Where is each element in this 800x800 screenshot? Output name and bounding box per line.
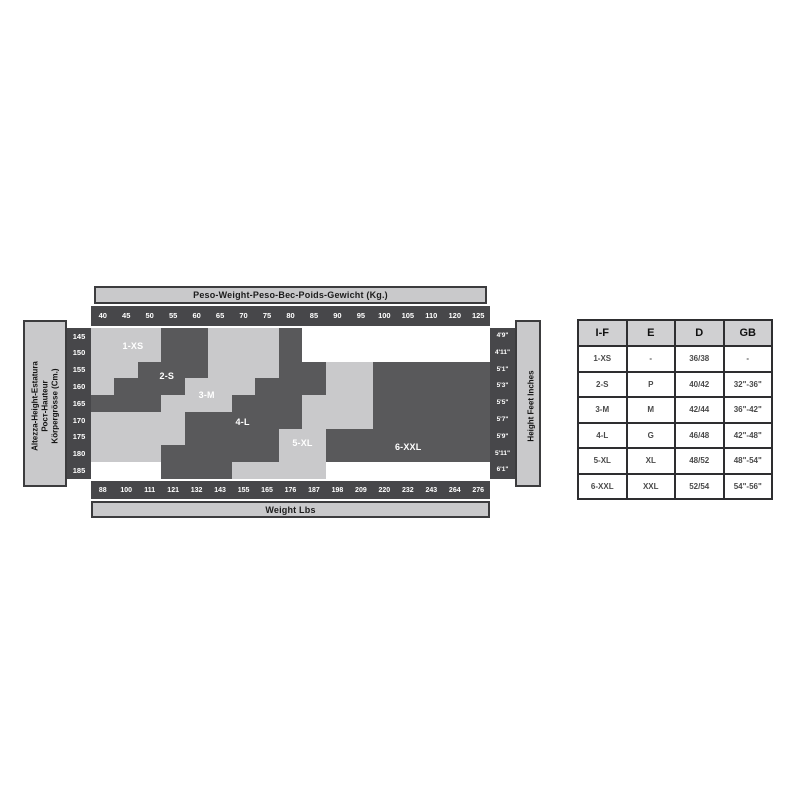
lbs-footer-label: Weight Lbs <box>265 505 315 515</box>
band-label-4-l: 4-L <box>236 417 250 427</box>
size-table-row: 4-LG46/4842"-48" <box>578 423 772 449</box>
size-cell-4-l <box>302 362 325 379</box>
size-cell-4-l <box>161 462 184 479</box>
feet-tick: 5'5" <box>490 395 515 412</box>
size-cell-1-xs <box>91 345 114 362</box>
size-cell-6-xxl <box>326 445 349 462</box>
kg-header-bar: Peso-Weight-Peso-Вес-Poids-Gewicht (Kg.) <box>94 286 487 304</box>
size-cell-4-l <box>232 395 255 412</box>
size-cell-2-s <box>161 345 184 362</box>
size-cell-2-s <box>138 395 161 412</box>
size-cell-4-l <box>232 445 255 462</box>
empty-cell <box>302 345 325 362</box>
size-table-header-row: I-FEDGB <box>578 320 772 346</box>
size-cell-6-xxl <box>396 395 419 412</box>
size-table-cell: 2-S <box>578 372 627 398</box>
feet-tick: 4'9" <box>490 328 515 345</box>
lbs-axis-strip: 8810011112113214315516517618719820922023… <box>91 481 490 499</box>
size-cell-5-xl <box>279 462 302 479</box>
empty-cell <box>114 462 137 479</box>
size-table-cell: 40/42 <box>675 372 724 398</box>
size-cell-5-xl <box>326 378 349 395</box>
size-cell-6-xxl <box>373 362 396 379</box>
cm-tick: 155 <box>67 362 91 379</box>
cm-tick: 170 <box>67 412 91 429</box>
size-table-cell: 54"-56" <box>724 474 773 500</box>
cm-tick: 185 <box>67 462 91 479</box>
empty-cell <box>396 328 419 345</box>
kg-tick: 90 <box>326 306 349 326</box>
empty-cell <box>420 328 443 345</box>
size-table-cell: 46/48 <box>675 423 724 449</box>
size-cell-6-xxl <box>420 445 443 462</box>
lbs-tick: 132 <box>185 481 208 499</box>
size-cell-3-m <box>161 429 184 446</box>
size-cell-5-xl <box>326 412 349 429</box>
size-cell-3-m <box>114 445 137 462</box>
cm-tick: 160 <box>67 378 91 395</box>
empty-cell <box>420 462 443 479</box>
empty-cell <box>396 345 419 362</box>
size-cell-3-m <box>91 429 114 446</box>
height-title-box: Altezza-Height-EstaturaРост-HauteurKörpe… <box>23 320 67 487</box>
empty-cell <box>91 462 114 479</box>
feet-title-text: Height Feet Inches <box>517 322 543 489</box>
size-conversion-table: I-FEDGB 1-XS-36/38-2-SP40/4232"-36"3-MM4… <box>577 319 773 500</box>
empty-cell <box>467 345 490 362</box>
size-table-cell: 42/44 <box>675 397 724 423</box>
size-cell-4-l <box>232 429 255 446</box>
size-table-row: 5-XLXL48/5248"-54" <box>578 448 772 474</box>
size-table-cell: 48"-54" <box>724 448 773 474</box>
size-cell-1-xs <box>91 378 114 395</box>
size-cell-3-m <box>232 378 255 395</box>
size-cell-6-xxl <box>373 378 396 395</box>
size-cell-4-l <box>279 362 302 379</box>
kg-tick: 40 <box>91 306 114 326</box>
size-table-cell: 1-XS <box>578 346 627 372</box>
size-cell-6-xxl <box>396 378 419 395</box>
size-chart-image: Peso-Weight-Peso-Вес-Poids-Gewicht (Kg.)… <box>0 0 800 800</box>
size-table-col-header: GB <box>724 320 773 346</box>
empty-cell <box>443 345 466 362</box>
lbs-tick: 220 <box>373 481 396 499</box>
band-label-1-xs: 1-XS <box>122 341 143 351</box>
empty-cell <box>467 328 490 345</box>
size-cell-2-s <box>114 378 137 395</box>
height-title-line: Körpergrösse (Cm.) <box>50 368 60 443</box>
size-cell-5-xl <box>349 362 372 379</box>
lbs-tick: 100 <box>114 481 137 499</box>
size-cell-5-xl <box>279 445 302 462</box>
size-cell-5-xl <box>302 412 325 429</box>
kg-tick: 105 <box>396 306 419 326</box>
lbs-tick: 121 <box>161 481 184 499</box>
size-cell-6-xxl <box>420 412 443 429</box>
band-label-6-xxl: 6-XXL <box>395 442 422 452</box>
size-cell-6-xxl <box>420 378 443 395</box>
size-cell-6-xxl <box>443 395 466 412</box>
size-cell-4-l <box>255 429 278 446</box>
lbs-tick: 276 <box>467 481 490 499</box>
size-cell-5-xl <box>302 445 325 462</box>
band-label-5-xl: 5-XL <box>292 438 312 448</box>
size-cell-3-m <box>255 362 278 379</box>
size-table-cell: 36"-42" <box>724 397 773 423</box>
feet-tick: 5'3" <box>490 378 515 395</box>
cm-axis-strip: 145150155160165170175180185 <box>67 328 91 479</box>
lbs-tick: 155 <box>232 481 255 499</box>
size-cell-4-l <box>279 345 302 362</box>
size-cell-3-m <box>255 328 278 345</box>
size-table-cell: XL <box>627 448 676 474</box>
size-table-cell: XXL <box>627 474 676 500</box>
size-cell-3-m <box>138 412 161 429</box>
kg-tick: 45 <box>114 306 137 326</box>
size-cell-3-m <box>208 345 231 362</box>
size-cell-1-xs <box>91 362 114 379</box>
height-title-line: Рост-Hauteur <box>40 380 50 431</box>
size-cell-6-xxl <box>467 412 490 429</box>
size-cell-3-m <box>161 395 184 412</box>
size-cell-3-m <box>114 412 137 429</box>
lbs-tick: 176 <box>279 481 302 499</box>
size-cell-4-l <box>255 395 278 412</box>
cm-tick: 145 <box>67 328 91 345</box>
size-cell-4-l <box>255 412 278 429</box>
size-cell-4-l <box>255 378 278 395</box>
size-cell-6-xxl <box>443 378 466 395</box>
size-cell-3-m <box>232 328 255 345</box>
kg-header-label: Peso-Weight-Peso-Вес-Poids-Gewicht (Kg.) <box>193 290 388 300</box>
empty-cell <box>373 328 396 345</box>
lbs-tick: 111 <box>138 481 161 499</box>
lbs-tick: 232 <box>396 481 419 499</box>
feet-tick: 5'9" <box>490 429 515 446</box>
empty-cell <box>373 345 396 362</box>
kg-tick: 80 <box>279 306 302 326</box>
size-cell-3-m <box>232 362 255 379</box>
size-cell-2-s <box>185 362 208 379</box>
size-cell-4-l <box>279 328 302 345</box>
lbs-tick: 264 <box>443 481 466 499</box>
size-cell-3-m <box>208 362 231 379</box>
kg-tick: 50 <box>138 306 161 326</box>
size-cell-6-xxl <box>349 429 372 446</box>
size-cell-6-xxl <box>443 362 466 379</box>
empty-cell <box>373 462 396 479</box>
size-cell-6-xxl <box>443 429 466 446</box>
size-cell-4-l <box>185 462 208 479</box>
size-cell-5-xl <box>255 462 278 479</box>
empty-cell <box>349 345 372 362</box>
feet-axis-strip: 4'9"4'11"5'1"5'3"5'5"5'7"5'9"5'11"6'1" <box>490 328 515 479</box>
size-cell-6-xxl <box>467 378 490 395</box>
empty-cell <box>326 462 349 479</box>
size-cell-6-xxl <box>396 362 419 379</box>
feet-tick: 6'1" <box>490 462 515 479</box>
size-cell-4-l <box>208 429 231 446</box>
feet-tick: 4'11" <box>490 345 515 362</box>
size-cell-4-l <box>279 412 302 429</box>
cm-tick: 180 <box>67 445 91 462</box>
size-cell-1-xs <box>114 362 137 379</box>
size-cell-2-s <box>161 328 184 345</box>
size-cell-3-m <box>208 328 231 345</box>
size-cell-5-xl <box>302 395 325 412</box>
size-cell-6-xxl <box>373 412 396 429</box>
size-table-cell: - <box>724 346 773 372</box>
size-cell-3-m <box>114 429 137 446</box>
feet-tick: 5'11" <box>490 445 515 462</box>
size-cell-4-l <box>208 412 231 429</box>
size-cell-4-l <box>185 429 208 446</box>
size-cell-1-xs <box>91 328 114 345</box>
size-cell-5-xl <box>302 462 325 479</box>
kg-tick: 65 <box>208 306 231 326</box>
lbs-tick: 243 <box>420 481 443 499</box>
size-table-cell: 5-XL <box>578 448 627 474</box>
size-cell-6-xxl <box>467 362 490 379</box>
cm-tick: 165 <box>67 395 91 412</box>
size-cell-5-xl <box>326 395 349 412</box>
size-cell-4-l <box>279 395 302 412</box>
kg-tick: 85 <box>302 306 325 326</box>
height-title-text: Altezza-Height-EstaturaРост-HauteurKörpe… <box>23 322 67 489</box>
feet-title-box: Height Feet Inches <box>515 320 541 487</box>
cm-tick: 175 <box>67 429 91 446</box>
lbs-tick: 209 <box>349 481 372 499</box>
size-table-cell: 36/38 <box>675 346 724 372</box>
size-table-row: 3-MM42/4436"-42" <box>578 397 772 423</box>
kg-tick: 100 <box>373 306 396 326</box>
kg-tick: 125 <box>467 306 490 326</box>
size-cell-4-l <box>161 445 184 462</box>
size-cell-6-xxl <box>467 395 490 412</box>
size-cell-5-xl <box>326 362 349 379</box>
size-cell-3-m <box>138 429 161 446</box>
size-cell-6-xxl <box>373 445 396 462</box>
size-table-col-header: D <box>675 320 724 346</box>
size-cell-2-s <box>185 345 208 362</box>
size-table-col-header: I-F <box>578 320 627 346</box>
size-cell-6-xxl <box>420 395 443 412</box>
kg-tick: 60 <box>185 306 208 326</box>
size-cell-5-xl <box>349 395 372 412</box>
lbs-tick: 143 <box>208 481 231 499</box>
size-cell-3-m <box>91 412 114 429</box>
kg-tick: 55 <box>161 306 184 326</box>
size-cell-2-s <box>91 395 114 412</box>
kg-tick: 95 <box>349 306 372 326</box>
size-cell-4-l <box>255 445 278 462</box>
height-title-line: Altezza-Height-Estatura <box>30 361 40 451</box>
size-cell-4-l <box>279 378 302 395</box>
size-cell-2-s <box>114 395 137 412</box>
empty-cell <box>302 328 325 345</box>
kg-tick: 70 <box>232 306 255 326</box>
size-table-cell: P <box>627 372 676 398</box>
lbs-tick: 88 <box>91 481 114 499</box>
lbs-tick: 187 <box>302 481 325 499</box>
size-cell-5-xl <box>349 412 372 429</box>
size-cell-6-xxl <box>420 429 443 446</box>
size-table-cell: M <box>627 397 676 423</box>
empty-cell <box>138 462 161 479</box>
kg-tick: 120 <box>443 306 466 326</box>
band-label-3-m: 3-M <box>199 390 215 400</box>
size-cell-2-s <box>138 378 161 395</box>
kg-axis-strip: 404550556065707580859095100105110120125 <box>91 306 490 326</box>
size-cell-6-xxl <box>373 429 396 446</box>
size-table-row: 2-SP40/4232"-36" <box>578 372 772 398</box>
size-cell-6-xxl <box>396 412 419 429</box>
size-cell-6-xxl <box>443 445 466 462</box>
size-cell-2-s <box>185 328 208 345</box>
size-table-cell: 3-M <box>578 397 627 423</box>
size-table-col-header: E <box>627 320 676 346</box>
size-cell-4-l <box>185 445 208 462</box>
size-cell-6-xxl <box>467 429 490 446</box>
size-cell-3-m <box>255 345 278 362</box>
size-cell-4-l <box>208 462 231 479</box>
size-cell-6-xxl <box>326 429 349 446</box>
size-cell-5-xl <box>349 378 372 395</box>
empty-cell <box>443 328 466 345</box>
empty-cell <box>396 462 419 479</box>
size-table-cell: 4-L <box>578 423 627 449</box>
empty-cell <box>349 328 372 345</box>
lbs-tick: 165 <box>255 481 278 499</box>
size-table-cell: 32"-36" <box>724 372 773 398</box>
lbs-tick: 198 <box>326 481 349 499</box>
size-cell-6-xxl <box>349 445 372 462</box>
size-cell-3-m <box>138 445 161 462</box>
size-table-cell: 48/52 <box>675 448 724 474</box>
size-cell-3-m <box>91 445 114 462</box>
empty-cell <box>443 462 466 479</box>
lbs-footer-bar: Weight Lbs <box>91 501 490 518</box>
empty-cell <box>420 345 443 362</box>
size-cell-4-l <box>208 445 231 462</box>
kg-tick: 75 <box>255 306 278 326</box>
size-cell-6-xxl <box>420 362 443 379</box>
size-table-cell: - <box>627 346 676 372</box>
empty-cell <box>467 462 490 479</box>
empty-cell <box>349 462 372 479</box>
band-label-2-s: 2-S <box>159 371 174 381</box>
cm-tick: 150 <box>67 345 91 362</box>
size-table-row: 1-XS-36/38- <box>578 346 772 372</box>
size-table-cell: 52/54 <box>675 474 724 500</box>
size-band-plot: 1-XS2-S3-M4-L5-XL6-XXL <box>91 328 490 479</box>
size-cell-4-l <box>185 412 208 429</box>
empty-cell <box>326 328 349 345</box>
size-cell-5-xl <box>232 462 255 479</box>
size-cell-6-xxl <box>467 445 490 462</box>
feet-tick: 5'1" <box>490 362 515 379</box>
size-table-cell: 6-XXL <box>578 474 627 500</box>
kg-tick: 110 <box>420 306 443 326</box>
size-cell-6-xxl <box>443 412 466 429</box>
size-table-cell: G <box>627 423 676 449</box>
size-cell-3-m <box>232 345 255 362</box>
size-cell-3-m <box>161 412 184 429</box>
size-cell-4-l <box>302 378 325 395</box>
feet-tick: 5'7" <box>490 412 515 429</box>
size-cell-2-s <box>138 362 161 379</box>
size-cell-6-xxl <box>373 395 396 412</box>
size-table-row: 6-XXLXXL52/5454"-56" <box>578 474 772 500</box>
empty-cell <box>326 345 349 362</box>
size-table-cell: 42"-48" <box>724 423 773 449</box>
